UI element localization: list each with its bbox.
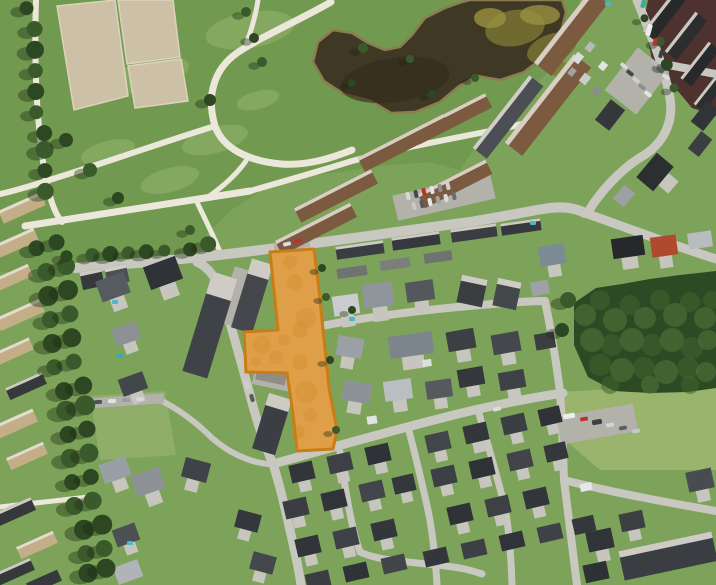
tree — [97, 559, 116, 578]
tree-shadow — [323, 431, 332, 437]
tree-shadow — [317, 361, 326, 367]
tree — [62, 328, 81, 347]
forest-canopy — [589, 354, 611, 376]
tree — [61, 305, 78, 322]
forest-canopy — [641, 376, 659, 394]
driveway — [340, 356, 355, 370]
car — [122, 398, 130, 403]
tree — [241, 7, 251, 17]
tree — [79, 443, 98, 462]
pool — [349, 317, 355, 321]
pond-algae — [520, 5, 560, 25]
tree-shadow — [339, 84, 348, 90]
driveway — [434, 397, 448, 410]
tree — [58, 280, 78, 300]
driveway — [621, 256, 639, 270]
tree-shadow — [462, 79, 471, 85]
tree — [75, 395, 95, 415]
tree — [185, 225, 195, 235]
tree — [36, 125, 52, 141]
tree — [428, 90, 436, 98]
tree — [641, 14, 649, 22]
building — [366, 415, 377, 424]
tree-shadow — [632, 19, 641, 25]
tree — [74, 377, 92, 395]
forest-canopy — [677, 357, 699, 379]
gravel-pitch — [128, 59, 188, 108]
tree — [471, 74, 479, 82]
tree — [83, 163, 97, 177]
building — [425, 378, 453, 399]
tree — [84, 492, 102, 510]
driveway — [414, 300, 430, 314]
tree-shadow — [309, 269, 318, 275]
tree — [318, 264, 326, 272]
tree — [37, 183, 54, 200]
building — [650, 234, 679, 257]
tree — [92, 515, 112, 535]
tree — [37, 163, 52, 178]
building — [405, 279, 436, 303]
tree — [158, 245, 170, 257]
building — [361, 281, 394, 309]
pool — [127, 541, 133, 545]
car — [94, 400, 102, 405]
driveway — [507, 388, 522, 401]
tree — [560, 292, 576, 308]
pool — [117, 354, 123, 358]
forest-canopy — [634, 307, 656, 329]
tree — [200, 236, 216, 252]
tree — [26, 41, 44, 59]
driveway — [392, 399, 408, 413]
tree — [204, 94, 216, 106]
pool — [530, 221, 536, 225]
tree — [20, 1, 34, 15]
car — [136, 397, 144, 402]
tree — [59, 133, 73, 147]
tree — [83, 469, 99, 485]
forest-canopy — [620, 328, 644, 352]
pool — [605, 2, 611, 6]
tree — [27, 83, 44, 100]
tree — [661, 59, 673, 71]
gravel-pitch — [118, 0, 180, 64]
forest-canopy — [574, 304, 596, 326]
tree — [29, 105, 43, 119]
driveway — [547, 264, 562, 278]
tree — [96, 540, 113, 557]
tree — [348, 306, 356, 314]
building — [383, 378, 414, 402]
tree — [348, 79, 356, 87]
tree — [66, 354, 82, 370]
driveway — [346, 401, 362, 415]
tree — [555, 323, 569, 337]
forest-canopy — [590, 290, 610, 310]
tree — [406, 55, 414, 63]
tree-shadow — [661, 89, 671, 96]
pond-algae — [474, 8, 506, 28]
forest-canopy — [601, 376, 619, 394]
tree — [61, 250, 73, 262]
driveway — [456, 349, 472, 363]
forest-canopy — [580, 328, 604, 352]
tree — [78, 421, 95, 438]
tree — [249, 33, 259, 43]
tree-shadow — [397, 60, 406, 66]
driveway — [372, 306, 389, 322]
forest-canopy — [641, 334, 663, 356]
forest-canopy — [680, 292, 700, 312]
forest-canopy — [601, 334, 623, 356]
forest-canopy — [660, 328, 684, 352]
building — [687, 230, 713, 249]
tree — [322, 293, 330, 301]
forest-canopy — [696, 362, 716, 382]
tree — [27, 21, 43, 37]
tree — [358, 43, 368, 53]
tree — [28, 63, 43, 78]
tree — [49, 234, 65, 250]
car — [108, 399, 116, 404]
pool — [112, 300, 118, 304]
forest-canopy — [681, 376, 699, 394]
tree-shadow — [339, 311, 348, 317]
building — [422, 359, 432, 367]
driveway — [466, 385, 481, 398]
driveway — [501, 352, 517, 366]
forest-canopy — [633, 357, 655, 379]
driveway — [659, 255, 674, 269]
tree — [326, 356, 334, 364]
aerial-imagery — [0, 0, 716, 585]
aerial-map-view[interactable] — [0, 0, 716, 585]
tree — [112, 192, 124, 204]
tree-shadow — [419, 95, 428, 101]
forest-canopy — [694, 307, 716, 329]
tree — [670, 84, 679, 93]
tree — [257, 57, 267, 67]
tree-shadow — [313, 298, 322, 304]
tree — [332, 426, 340, 434]
